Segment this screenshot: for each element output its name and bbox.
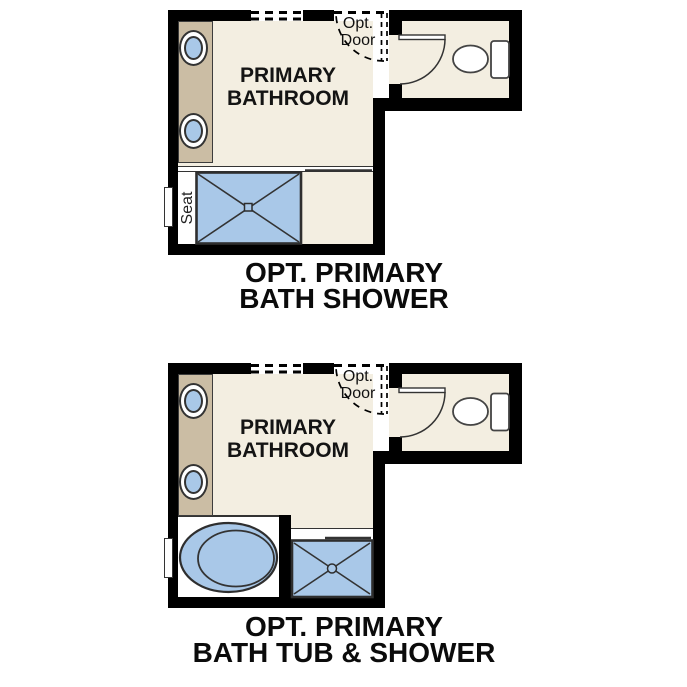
- sink: [179, 30, 208, 66]
- wall-step: [373, 451, 385, 608]
- wall-top-mid: [303, 10, 334, 21]
- wall-wc-stub-top: [389, 10, 402, 35]
- shower-drain: [245, 204, 253, 212]
- sink-basin: [184, 389, 203, 413]
- wall-top-right: [389, 363, 522, 374]
- plan-top-floor-right-of-shower: [301, 172, 373, 244]
- plan-top-wc-floor: [389, 21, 509, 98]
- wall-tub-divider: [279, 515, 291, 597]
- wall-bottom: [168, 597, 385, 608]
- shower-glass-panel: [291, 528, 373, 540]
- room-label-line1: PRIMARY: [172, 64, 404, 87]
- opt-door-label: Opt. Door: [333, 15, 383, 49]
- plan-bottom-caption-line2: BATH TUB & SHOWER: [157, 640, 531, 666]
- sink-basin: [184, 119, 203, 143]
- opt-door-label: Opt. Door: [333, 368, 383, 402]
- wall-bottom: [168, 244, 385, 255]
- opt-door-line1: Opt.: [333, 15, 383, 32]
- sink-basin: [184, 470, 203, 494]
- shower-glass-panel: [178, 166, 373, 172]
- wall-niche: [164, 538, 173, 578]
- plan-bottom-floor-above-shower: [291, 516, 373, 528]
- seat-label: Seat: [179, 192, 197, 225]
- sink-basin: [184, 36, 203, 60]
- optional-opening: [251, 363, 303, 374]
- wall-top-left: [168, 10, 251, 21]
- wall-wc-right: [509, 10, 522, 111]
- wall-top-mid: [303, 363, 334, 374]
- opt-door-line1: Opt.: [333, 368, 383, 385]
- room-label: PRIMARY BATHROOM: [172, 64, 404, 110]
- wall-wc-right: [509, 363, 522, 464]
- floor-plan-sheet: PRIMARY BATHROOM Opt. Door Seat OPT. PRI…: [0, 0, 687, 687]
- plan-bottom-wc-floor: [389, 374, 509, 451]
- plan-bottom-caption: OPT. PRIMARY BATH TUB & SHOWER: [157, 614, 531, 666]
- wall-wc-stub-top: [389, 363, 402, 388]
- shower-drain: [328, 564, 337, 573]
- opt-door-line2: Door: [333, 385, 383, 402]
- tub-alcove: [178, 517, 279, 597]
- optional-opening: [251, 10, 303, 21]
- wall-top-left: [168, 363, 251, 374]
- room-label-line1: PRIMARY: [172, 416, 404, 439]
- room-label: PRIMARY BATHROOM: [172, 416, 404, 462]
- shower-pan: [292, 538, 373, 597]
- wall-top-right: [389, 10, 522, 21]
- wall-niche: [164, 187, 173, 227]
- sink: [179, 464, 208, 500]
- plan-top-caption-line2: BATH SHOWER: [157, 286, 531, 312]
- opt-door-line2: Door: [333, 32, 383, 49]
- plan-top-caption: OPT. PRIMARY BATH SHOWER: [157, 260, 531, 312]
- sink: [179, 383, 208, 419]
- sink: [179, 113, 208, 149]
- room-label-line2: BATHROOM: [172, 439, 404, 462]
- wall-step: [373, 98, 385, 255]
- room-label-line2: BATHROOM: [172, 87, 404, 110]
